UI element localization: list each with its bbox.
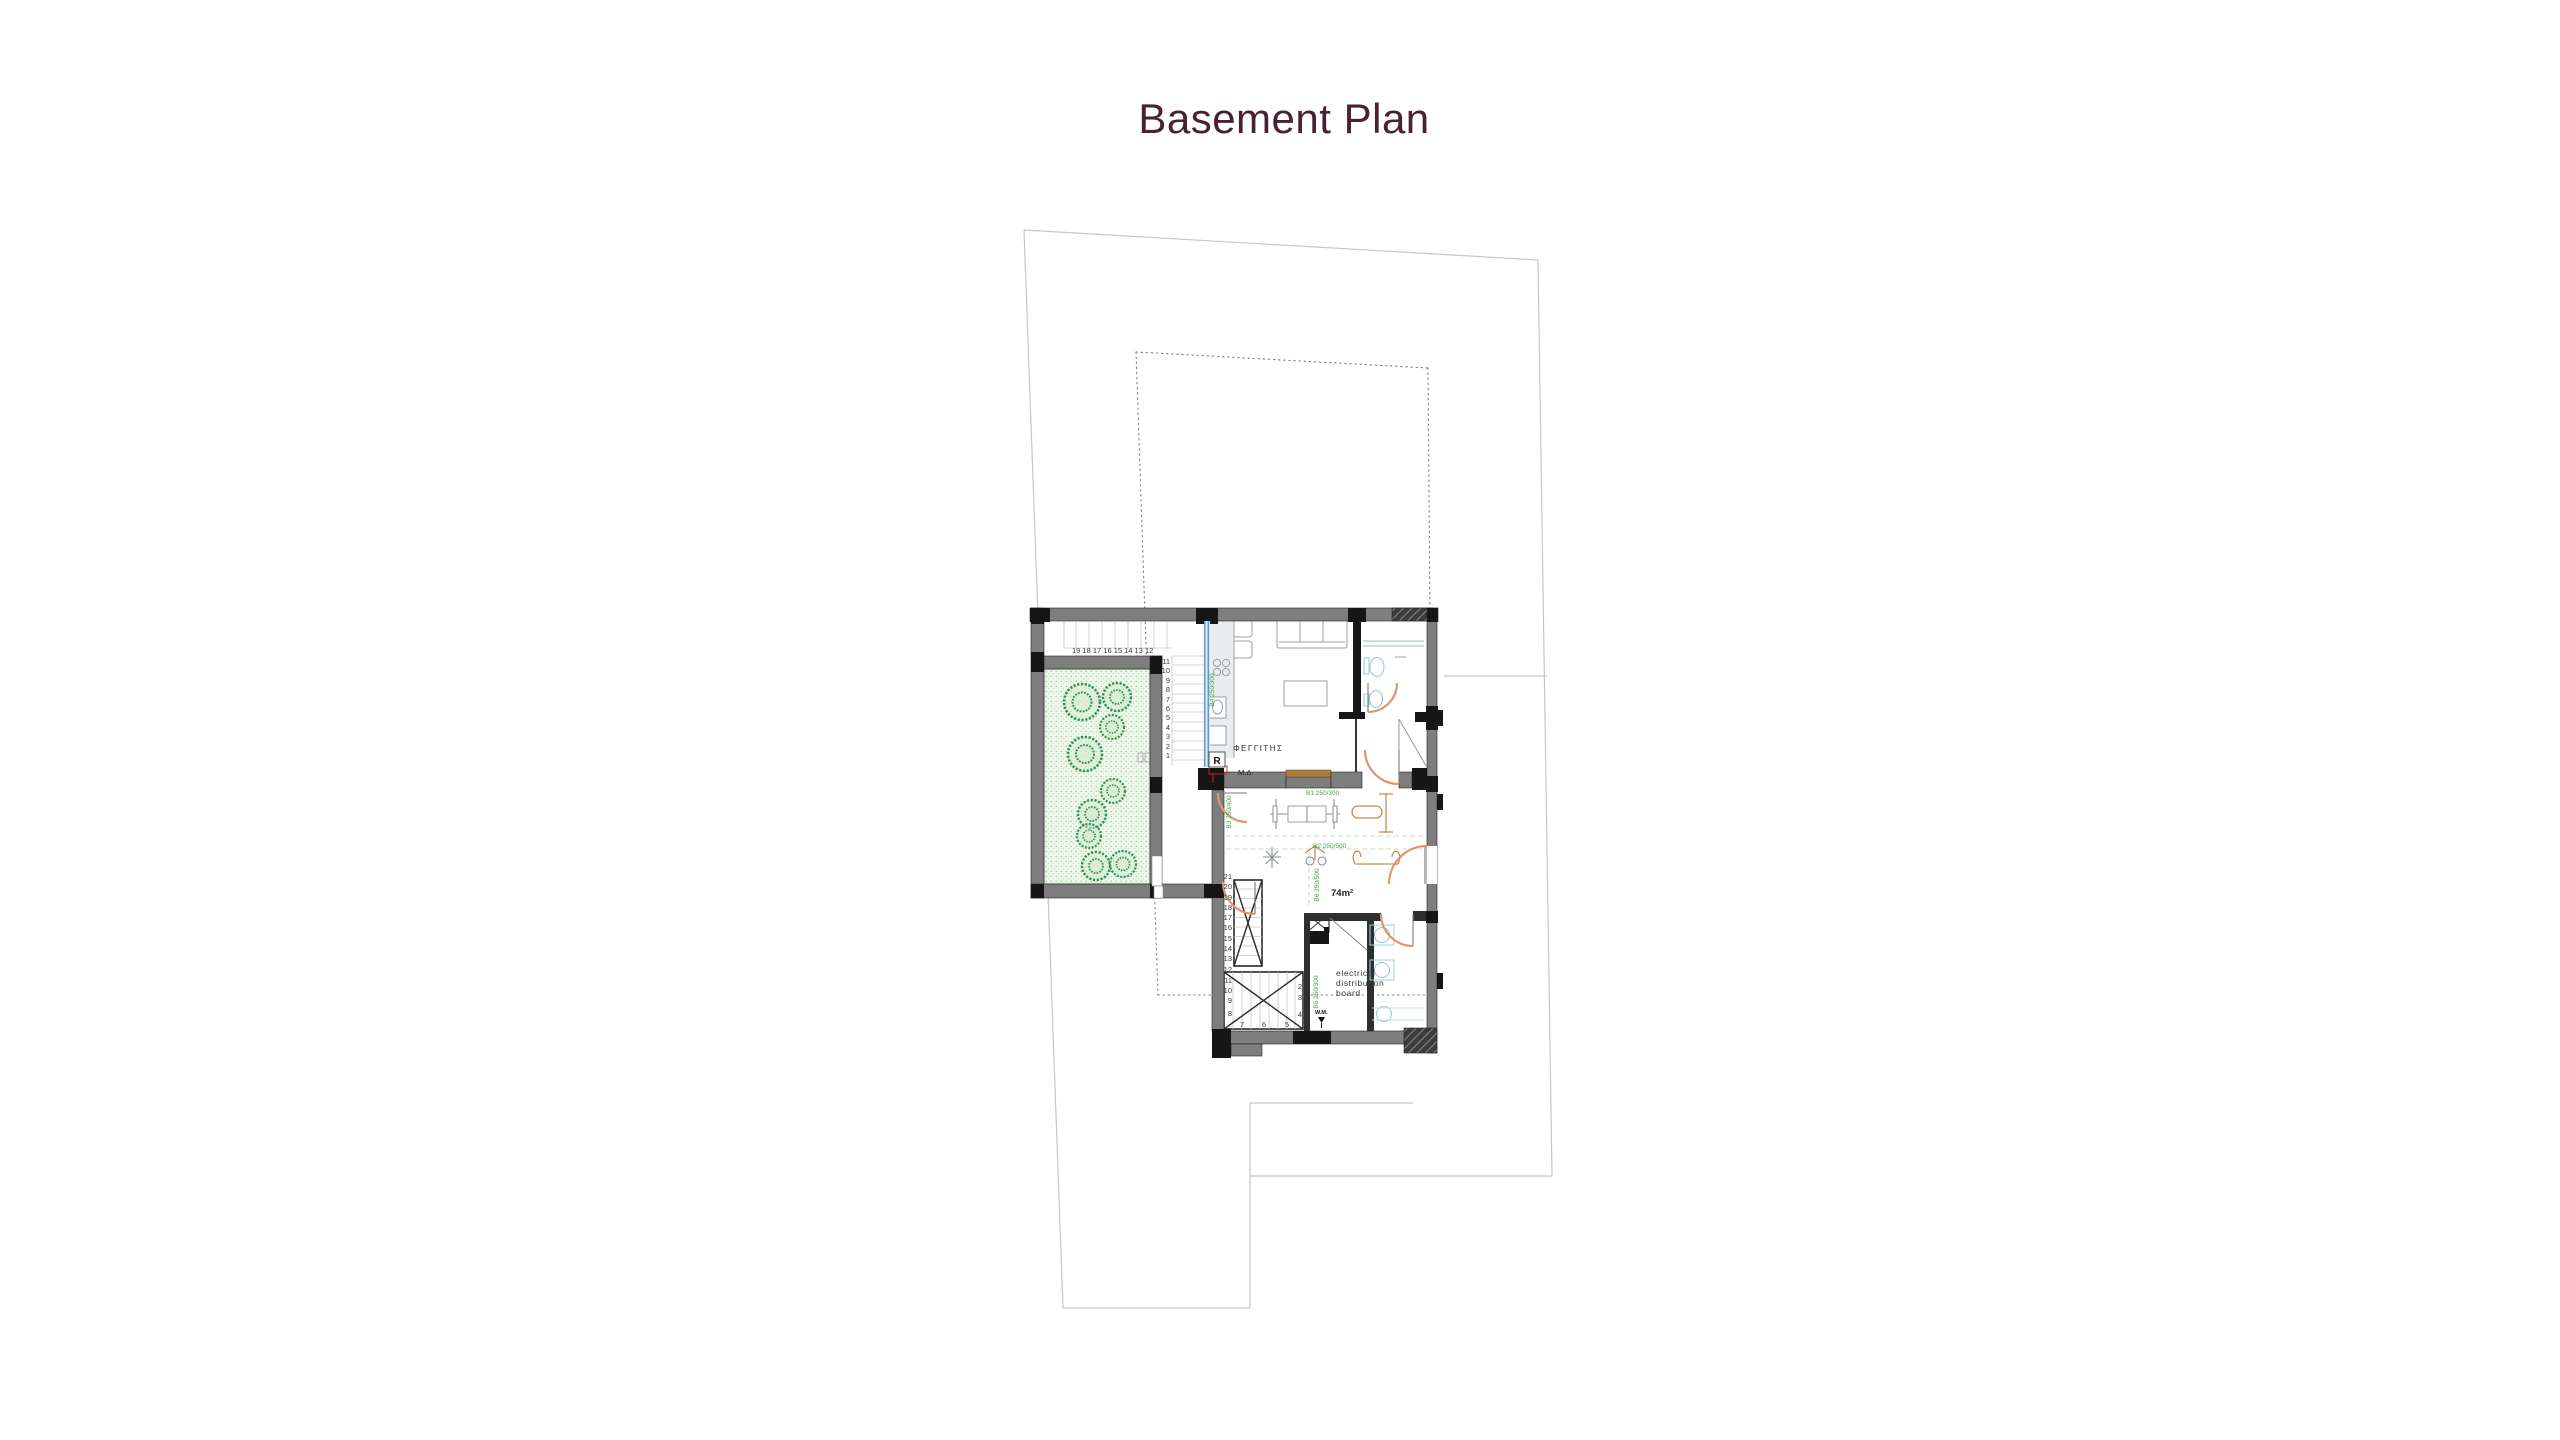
- svg-text:6: 6: [1166, 704, 1170, 713]
- living-room-furniture: [1233, 619, 1347, 706]
- stair-numbers-mid-column: 21 20 19 18 17 16 15 14 13 12: [1224, 872, 1232, 974]
- lintel-beam: [1286, 770, 1331, 777]
- svg-text:3: 3: [1298, 993, 1302, 1002]
- cable-machine-icon: [1263, 847, 1281, 868]
- svg-text:11: 11: [1224, 976, 1232, 985]
- md-marker-label: Μ.Δ.: [1238, 768, 1253, 777]
- svg-text:8: 8: [1166, 685, 1170, 694]
- stair-corridor-flight: [1172, 656, 1204, 765]
- svg-text:16: 16: [1224, 923, 1232, 932]
- svg-text:6: 6: [1262, 1020, 1266, 1029]
- svg-text:10: 10: [1162, 666, 1170, 675]
- weight-bench-icon: [1270, 799, 1340, 829]
- svg-text:7: 7: [1240, 1020, 1244, 1029]
- page-title: Basement Plan: [1138, 95, 1429, 142]
- svg-text:1: 1: [1166, 751, 1170, 760]
- stair-mid-flight: [1234, 880, 1262, 966]
- stair-numbers-lower-right: 2 3 4: [1298, 982, 1302, 1019]
- svg-text:2: 2: [1166, 742, 1170, 751]
- svg-text:19: 19: [1224, 893, 1232, 902]
- svg-text:15: 15: [1224, 934, 1232, 943]
- laundry-fixtures: [1370, 925, 1424, 1022]
- svg-text:8: 8: [1228, 1009, 1232, 1018]
- floor-drain-icon: [1318, 1017, 1325, 1023]
- armchair-icon: [1233, 641, 1252, 658]
- bidet-icon: [1370, 691, 1383, 708]
- svg-text:17: 17: [1224, 913, 1232, 922]
- coffee-table-icon: [1284, 681, 1327, 706]
- svg-text:5: 5: [1166, 713, 1170, 722]
- dim-b3: Β3 250/400: [1226, 795, 1233, 829]
- svg-text:12: 12: [1224, 965, 1232, 974]
- svg-text:5: 5: [1285, 1020, 1289, 1029]
- svg-text:3: 3: [1166, 732, 1170, 741]
- electrical-label: electrical: [1336, 968, 1376, 978]
- svg-text:4: 4: [1166, 723, 1170, 732]
- svg-text:11: 11: [1162, 657, 1170, 666]
- sofa-icon: [1277, 619, 1347, 648]
- r-marker-label: R: [1213, 756, 1221, 767]
- svg-text:distribution: distribution: [1336, 978, 1384, 988]
- hatched-wall-block: [1392, 608, 1427, 621]
- svg-text:10: 10: [1224, 986, 1232, 995]
- svg-text:4: 4: [1298, 1010, 1302, 1019]
- bench-press-icon: [1352, 793, 1393, 833]
- area-label: 74m²: [1331, 888, 1353, 899]
- garden-courtyard: [1044, 669, 1150, 884]
- dim-b5: Β5 250/300: [1313, 975, 1320, 1009]
- svg-text:13: 13: [1224, 954, 1232, 963]
- hatched-wall-block: [1404, 1028, 1437, 1053]
- svg-text:2: 2: [1298, 982, 1302, 991]
- dim-window: Β4 250/300: [1209, 673, 1216, 707]
- toilet-icon: [1370, 658, 1384, 677]
- gym-equipment: [1263, 793, 1400, 868]
- dim-b2: Β2 250/500: [1313, 843, 1347, 850]
- basement-plan-page: Basement Plan: [0, 0, 2560, 1440]
- svg-text:9: 9: [1228, 996, 1232, 1005]
- toilet-tank-icon: [1364, 658, 1369, 674]
- svg-text:7: 7: [1166, 695, 1170, 704]
- boiler-icon: [1377, 1007, 1392, 1022]
- skylight-label: ΦΕΓΓΙΤΗΣ: [1233, 743, 1283, 753]
- floor-plan-drawing: Basement Plan: [0, 0, 2560, 1440]
- storage-door-icon: [1365, 750, 1399, 784]
- dim-b1: Β1 250/300: [1306, 790, 1340, 797]
- dim-b6: Β6 250/500: [1314, 868, 1321, 902]
- wm-label: W.M.: [1315, 1010, 1328, 1016]
- svg-text:14: 14: [1224, 944, 1232, 953]
- svg-text:board: board: [1336, 988, 1361, 998]
- svg-text:21: 21: [1224, 872, 1232, 881]
- svg-text:20: 20: [1224, 882, 1232, 891]
- squat-rack-icon: [1353, 851, 1400, 864]
- armchair-icon: [1233, 620, 1252, 637]
- svg-text:18: 18: [1224, 903, 1232, 912]
- stair-numbers-right-column: 11 10 9 8 7 6 5 4 3 2 1: [1162, 657, 1170, 760]
- stair-numbers-top: 19 18 17 16 15 14 13 12: [1072, 646, 1153, 655]
- svg-text:9: 9: [1166, 676, 1170, 685]
- dotted-setback-outline: [1136, 352, 1433, 995]
